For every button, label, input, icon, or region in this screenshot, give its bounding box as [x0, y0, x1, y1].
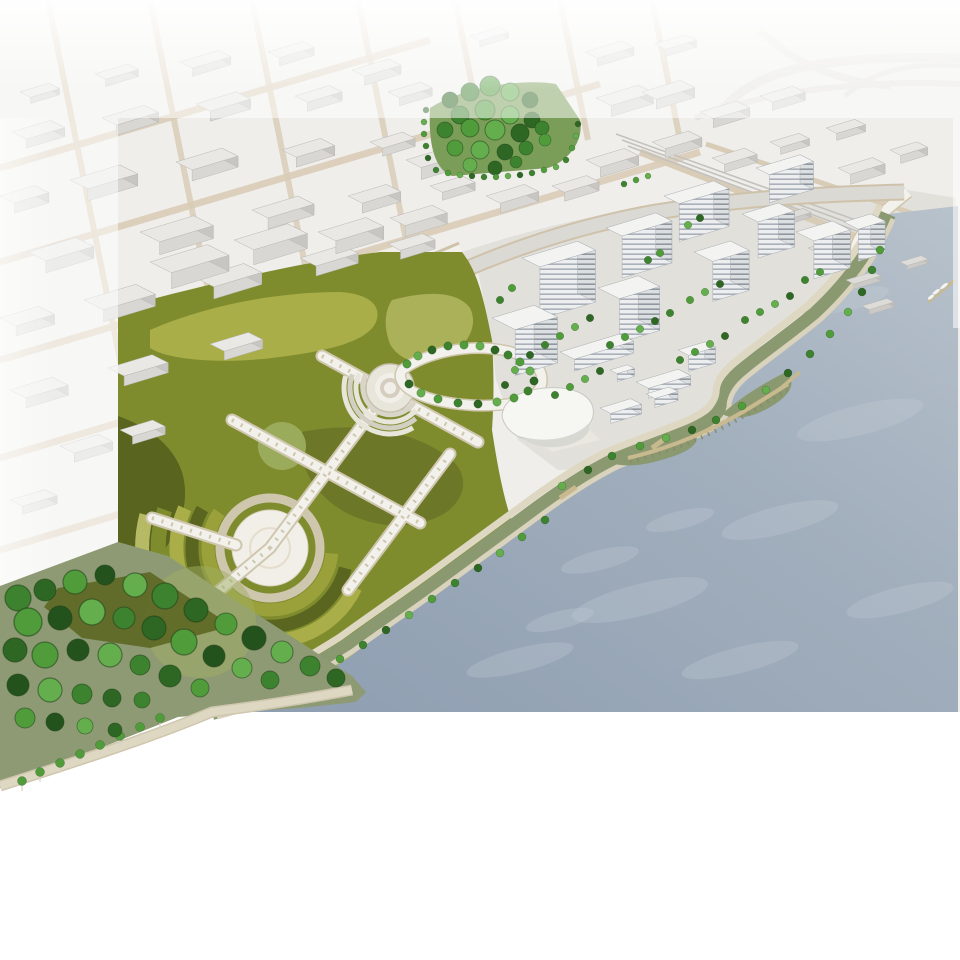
waterfront-masterplan-rendering	[0, 0, 960, 960]
architectural-rendering	[0, 0, 960, 960]
